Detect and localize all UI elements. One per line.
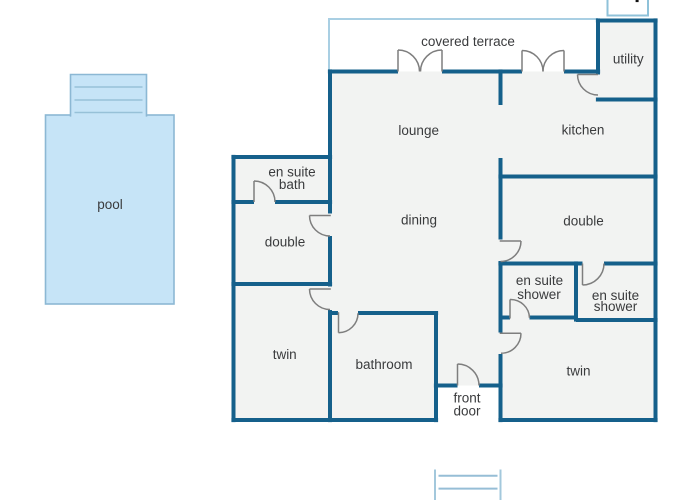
- svg-text:shower: shower: [594, 299, 638, 314]
- svg-text:lounge: lounge: [398, 123, 439, 138]
- svg-text:dining: dining: [401, 213, 437, 228]
- svg-text:twin: twin: [273, 347, 297, 362]
- svg-text:en suite: en suite: [516, 273, 563, 288]
- svg-text:double: double: [265, 234, 306, 249]
- svg-text:pool: pool: [97, 197, 123, 212]
- svg-text:twin: twin: [566, 364, 590, 379]
- svg-text:double: double: [563, 213, 604, 228]
- svg-text:door: door: [453, 404, 481, 419]
- svg-text:bath: bath: [279, 177, 305, 192]
- svg-text:shower: shower: [517, 287, 561, 302]
- svg-text:kitchen: kitchen: [562, 123, 605, 138]
- svg-text:utility: utility: [613, 52, 644, 67]
- svg-text:covered terrace: covered terrace: [421, 34, 515, 49]
- svg-text:bathroom: bathroom: [355, 357, 412, 372]
